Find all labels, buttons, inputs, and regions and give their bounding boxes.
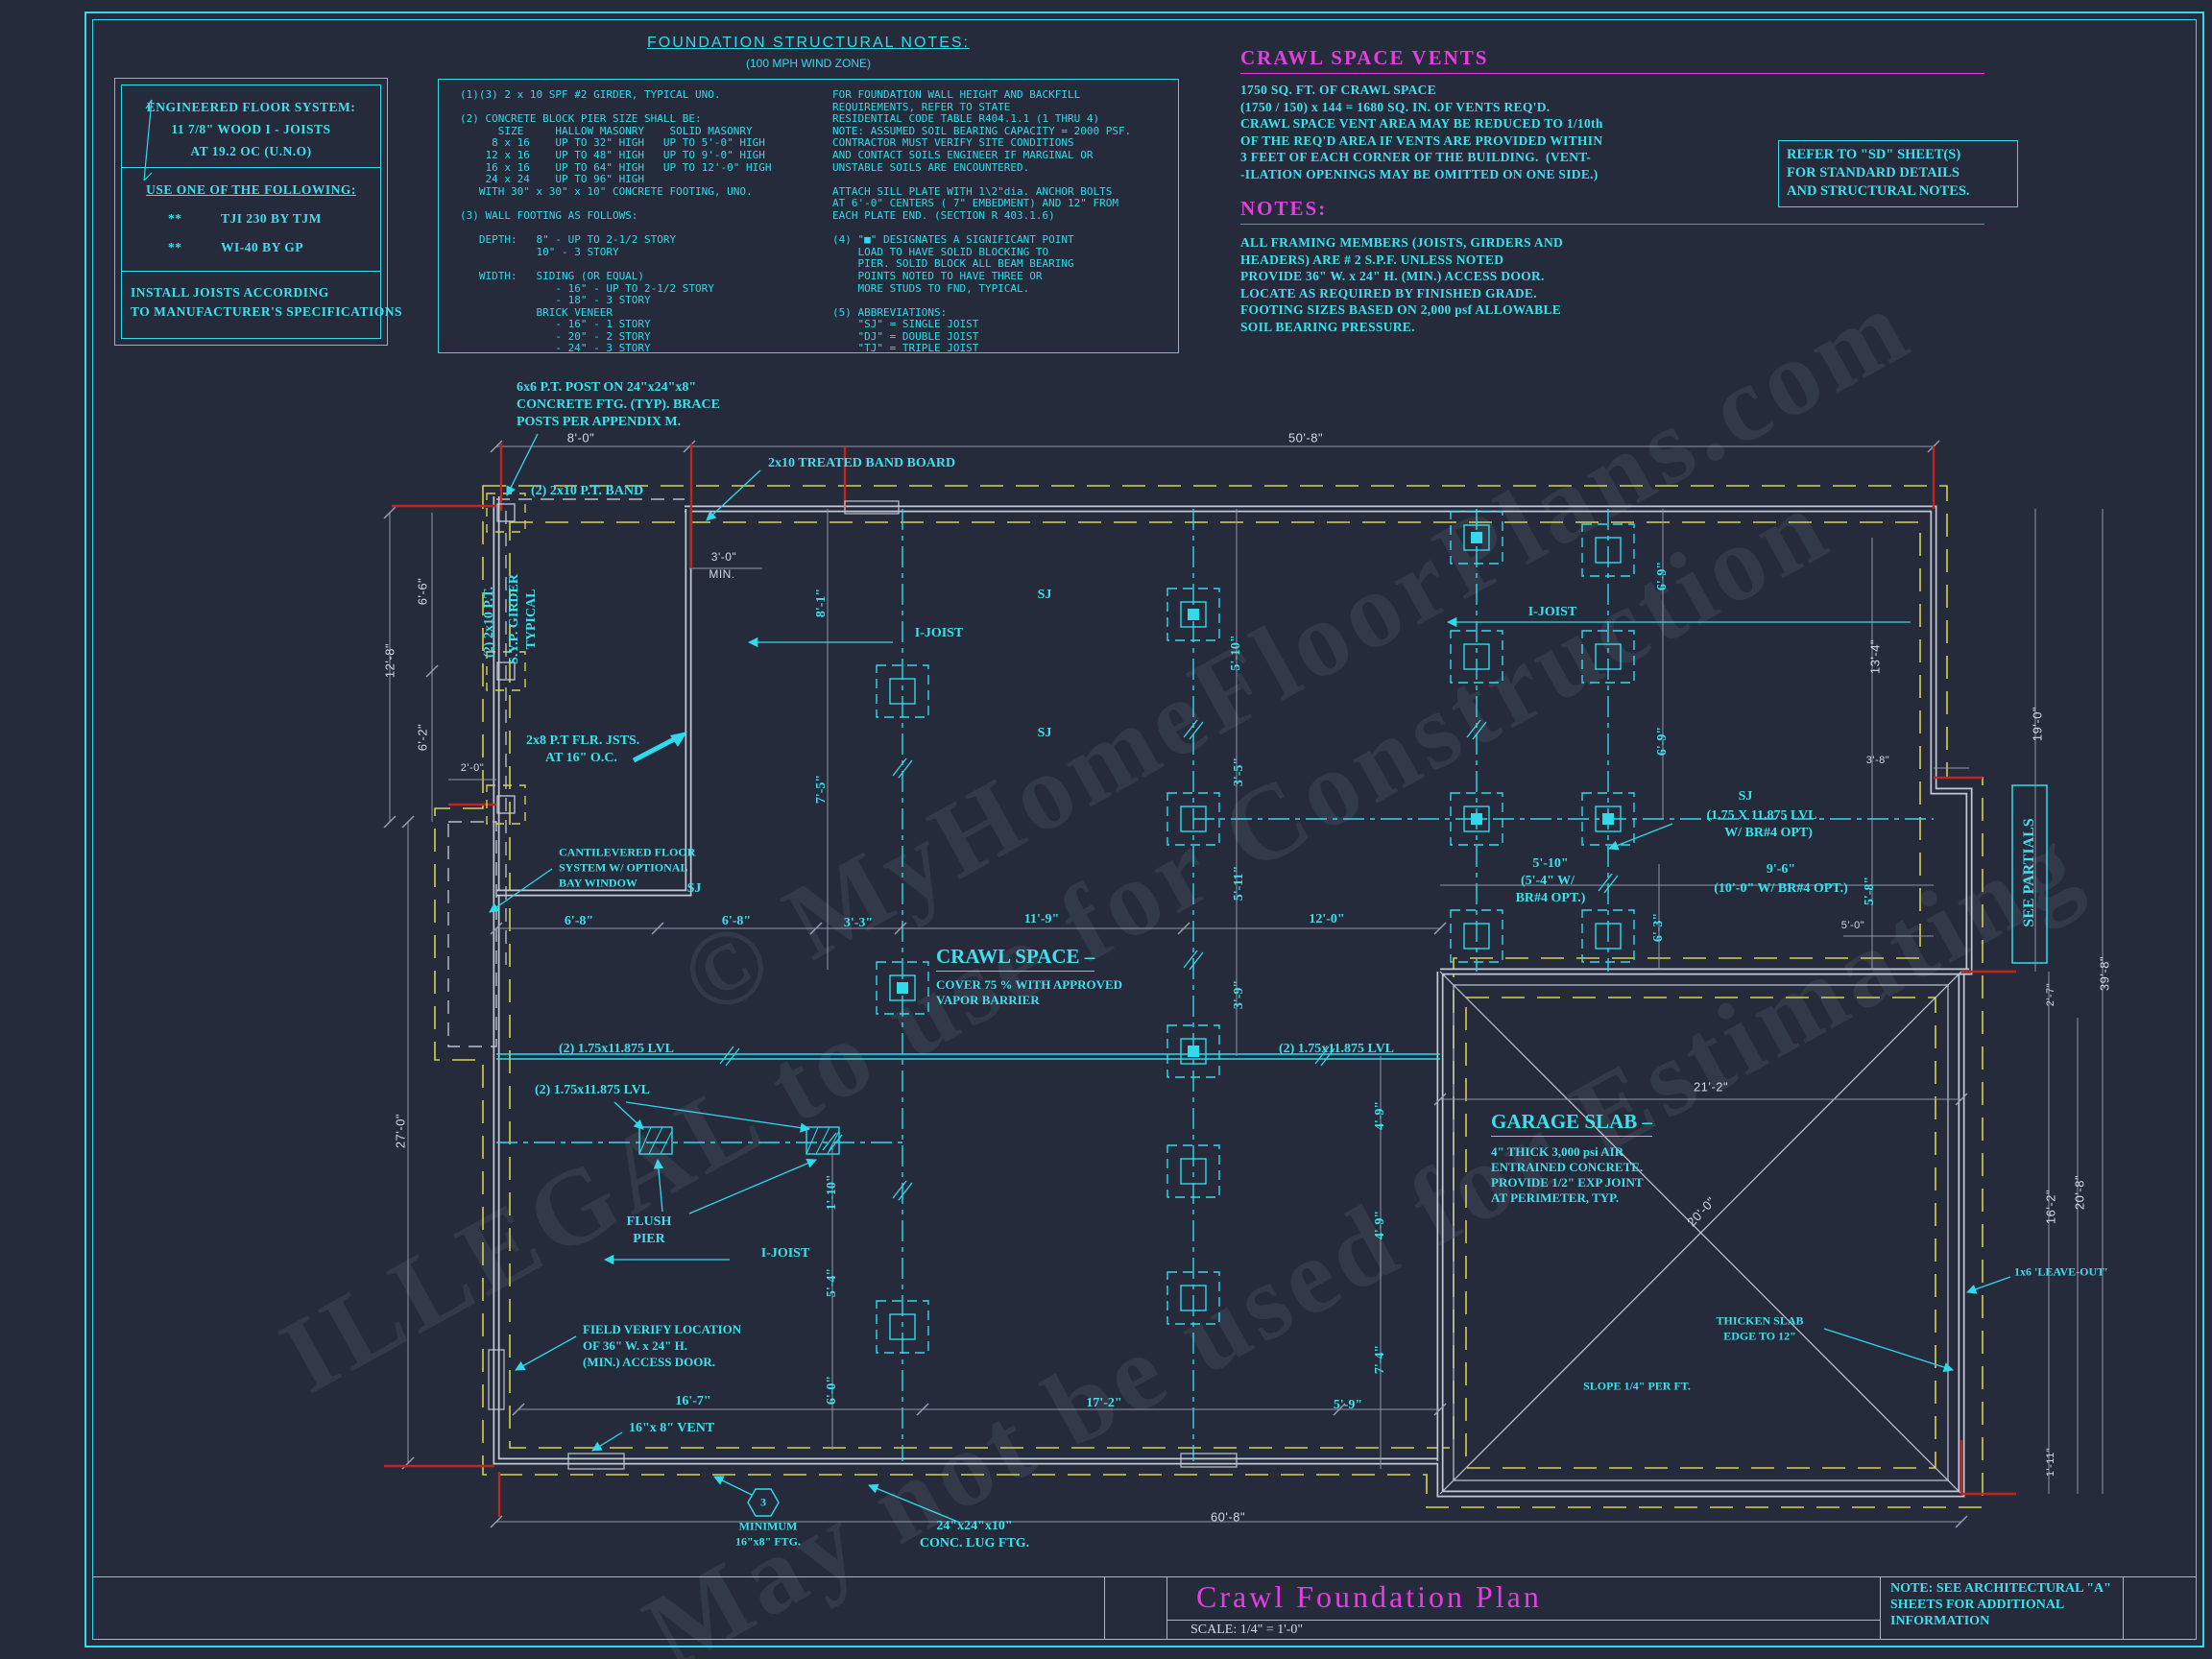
title-block-note-cell: NOTE: SEE ARCHITECTURAL "A" SHEETS FOR A… [1880,1577,2124,1639]
plan-callout: 1x6 'LEAVE-OUT' [2014,1265,2107,1280]
dimension-label: 21'-2" [1694,1080,1728,1094]
plan-callout: 6'-8" [722,914,751,929]
plan-callout: 6x6 P.T. POST ON 24"x24"x8" [517,380,696,396]
dimension-label: 20'-8" [2073,1175,2087,1210]
dimension-label: 20'-0" [1684,1194,1719,1230]
plan-callout: 3'-5" [1232,757,1247,786]
plan-callout: OF 36" W. x 24" H. [583,1338,687,1354]
plan-callout: 6'-0" [825,1376,840,1405]
title-block-spacer-cell [1104,1577,1166,1639]
plan-callout: SJ [1038,726,1052,741]
dimension-label: 27'-0" [394,1114,408,1148]
plan-callout: 2x10 TREATED BAND BOARD [768,456,955,471]
plan-callout: AT 16" O.C. [545,751,617,766]
plan-callout: AT PERIMETER, TYP. [1491,1190,1619,1206]
plan-callout: (2) 1.75x11.875 LVL [535,1083,650,1098]
sheet-title: Crawl Foundation Plan [1196,1579,1542,1615]
dimension-label: 50'-8" [1288,431,1323,445]
plan-callout: 6'-9" [1655,727,1671,756]
see-partials-label: SEE PARTIALS [2021,818,2038,926]
plan-callout: PIER [633,1232,664,1247]
plan-callout: 5'-10" [1532,856,1568,872]
plan-callout: 4'-9" [1373,1211,1388,1239]
plan-callout: VAPOR BARRIER [936,993,1040,1008]
dimension-label: 6'-6" [416,578,430,605]
dimension-label: 8'-0" [567,431,594,445]
plan-callout: 6'-3" [1651,913,1667,942]
plan-callout: CANTILEVERED FLOOR [559,846,695,860]
plan-callout: 5'-10" [1229,635,1244,670]
dimension-label: 3'-0" [711,550,736,564]
plan-callout: 16"x8" FTG. [735,1535,801,1550]
plan-callout: CONC. LUG FTG. [920,1536,1029,1551]
dimension-label: 39'-8" [2098,956,2112,991]
plan-callout: FLUSH [627,1214,672,1230]
plan-callout: EDGE TO 12" [1723,1330,1796,1344]
plan-callout: 5'-4" [825,1268,840,1297]
plan-callout: COVER 75 % WITH APPROVED [936,977,1122,993]
plan-callout: 8'-1" [814,589,829,617]
sheet-scale: SCALE: 1/4" = 1'-0" [1190,1623,1303,1638]
plan-callout: (5'-4" W/ [1521,874,1575,889]
dimension-label: 1'-11" [2045,1448,2056,1477]
plan-callout: FIELD VERIFY LOCATION [583,1322,741,1337]
plan-callout: TYPICAL [524,589,540,649]
plan-callout: 16"x 8" VENT [629,1421,714,1436]
plan-callout: 16'-7" [675,1394,710,1409]
plan-callout: 2x8 P.T FLR. JSTS. [526,733,639,749]
plan-callout: BAY WINDOW [559,877,637,891]
plan-callout: 4'-9" [1373,1101,1388,1130]
plan-labels-layer: 6x6 P.T. POST ON 24"x24"x8"CONCRETE FTG.… [0,0,2212,1659]
plan-callout: SJ [687,881,702,897]
plan-callout: MINIMUM [739,1520,798,1534]
plan-callout: (10'-0" W/ BR#4 OPT.) [1714,881,1847,897]
title-block: Crawl Foundation Plan SCALE: 1/4" = 1'-0… [92,1576,2197,1640]
dimension-label: 12'-8" [383,643,397,678]
dimension-label: 2'-0" [461,762,484,774]
plan-callout: (2) 1.75x11.875 LVL [1279,1042,1394,1057]
plan-callout: 5'-9" [1334,1398,1362,1413]
dimension-label: 19'-0" [2031,707,2045,741]
plan-callout: (MIN.) ACCESS DOOR. [583,1355,715,1370]
plan-callout: CRAWL SPACE – [936,945,1094,972]
dimension-label: 5'-0" [1841,920,1864,931]
plan-callout: 7'-5" [814,775,829,804]
dimension-label: 13'-4" [1868,639,1883,674]
plan-callout: 17'-2" [1086,1396,1121,1411]
plan-callout: I-JOIST [1528,605,1577,620]
plan-callout: 12'-0" [1309,912,1344,927]
plan-callout: 6'-8" [565,914,593,929]
plan-callout: 9'-6" [1767,862,1795,878]
plan-callout: SJ [1739,789,1753,805]
plan-callout: 5'-11" [1232,866,1247,902]
tb-note-line-3: INFORMATION [1890,1613,2111,1629]
plan-callout: I-JOIST [915,626,964,641]
plan-callout: (2) 1.75x11.875 LVL [559,1042,674,1057]
plan-callout: 7'-4" [1373,1345,1388,1374]
plan-callout: 3'-3" [844,916,873,931]
detail-marker-3: 3 [760,1496,766,1510]
plan-callout: 5'-8" [1863,877,1878,905]
plan-callout: I-JOIST [761,1246,810,1262]
plan-callout: (2) 2x10 P.T. [482,587,497,658]
plan-callout: 11'-9" [1024,912,1060,927]
tb-note-line-2: SHEETS FOR ADDITIONAL [1890,1597,2111,1613]
plan-callout: 24"x24"x10" [936,1519,1012,1534]
plan-callout: 6'-9" [1655,562,1671,590]
plan-callout: (2) 2x10 P.T. BAND [531,484,643,499]
dimension-label: 2'-7" [2045,983,2056,1006]
plan-callout: 3'-9" [1232,980,1247,1009]
plan-callout: ENTRAINED CONCRETE. [1491,1160,1643,1175]
plan-callout: GARAGE SLAB – [1491,1110,1652,1137]
dimension-label: 16'-2" [2044,1190,2058,1224]
dimension-label: 6'-2" [416,724,430,751]
title-block-title-cell: Crawl Foundation Plan SCALE: 1/4" = 1'-0… [1166,1577,1880,1639]
dimension-label: 3'-8" [1866,755,1889,766]
plan-callout: POSTS PER APPENDIX M. [517,415,681,430]
dimension-label: MIN. [709,567,734,581]
plan-callout: SYSTEM W/ OPTIONAL [559,861,687,876]
plan-callout: SLOPE 1/4" PER FT. [1583,1380,1691,1394]
plan-callout: 1'-10" [825,1174,840,1210]
plan-callout: THICKEN SLAB [1716,1314,1803,1329]
plan-callout: 4" THICK 3,000 psi AIR [1491,1144,1623,1160]
plan-callout: SJ [1038,588,1052,603]
plan-callout: PROVIDE 1/2" EXP JOINT [1491,1175,1644,1190]
plan-callout: S.Y.P. GIRDER [507,574,522,664]
tb-note-line-1: NOTE: SEE ARCHITECTURAL "A" [1890,1580,2111,1597]
dimension-label: 60'-8" [1211,1510,1245,1525]
plan-callout: BR#4 OPT.) [1516,891,1586,906]
plan-callout: CONCRETE FTG. (TYP). BRACE [517,397,720,413]
plan-callout: (1.75 X 11.875 LVL [1706,808,1816,824]
plan-callout: W/ BR#4 OPT) [1724,826,1813,841]
